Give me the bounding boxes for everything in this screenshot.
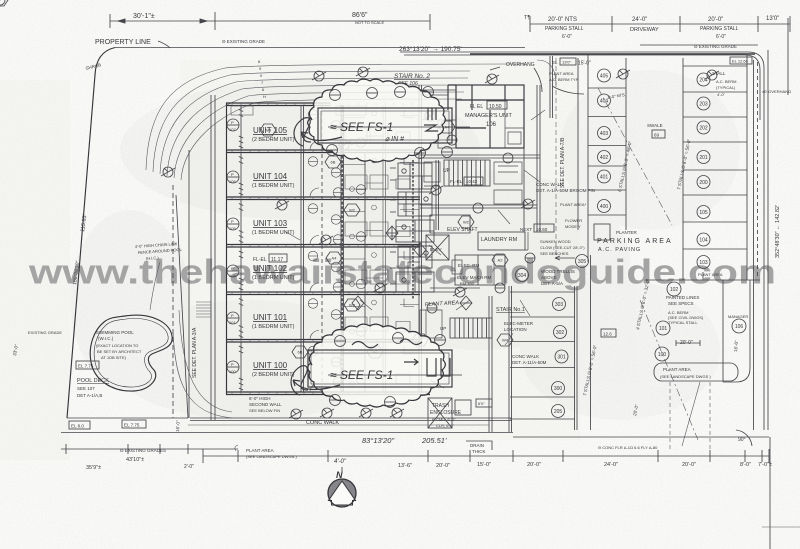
svg-text:201: 201 (699, 155, 708, 161)
svg-text:6B: 6B (331, 160, 336, 165)
svg-text:SUNKEN WOOD: SUNKEN WOOD (540, 239, 571, 244)
svg-text:6' CMU, 6'-0": 6' CMU, 6'-0" (432, 417, 456, 422)
svg-text:202: 202 (699, 126, 708, 132)
svg-text:86'6": 86'6" (352, 12, 368, 19)
svg-text:STAIR No. 2: STAIR No. 2 (394, 73, 430, 80)
svg-text:(EXACT LOCATION TO: (EXACT LOCATION TO (96, 343, 138, 348)
svg-text:43'10"±: 43'10"± (126, 457, 144, 463)
svg-text:FL EL: FL EL (470, 104, 483, 110)
svg-text:(W.I.C.): (W.I.C.) (98, 336, 114, 341)
svg-text:A2: A2 (498, 258, 504, 263)
svg-text:104: 104 (699, 238, 708, 244)
svg-text:12.6: 12.6 (603, 332, 612, 337)
svg-text:400: 400 (600, 204, 609, 210)
svg-text:A.C. BERM TYP: A.C. BERM TYP (549, 77, 579, 82)
svg-text:20'-0" NTS: 20'-0" NTS (548, 17, 577, 23)
svg-text:SEE BELOW FIN: SEE BELOW FIN (249, 408, 280, 413)
svg-text:NOT TO SCALE: NOT TO SCALE (355, 20, 384, 25)
svg-text:(1 BEDRM UNIT): (1 BEDRM UNIT) (252, 275, 295, 281)
svg-text:PLANT AREA: PLANT AREA (549, 71, 574, 76)
svg-text:15'-0": 15'-0" (477, 462, 491, 468)
svg-text:W2: W2 (349, 208, 356, 213)
svg-text:106: 106 (229, 179, 236, 184)
svg-text:SEE BENCHES: SEE BENCHES (540, 251, 569, 256)
svg-text:RM 102: RM 102 (460, 281, 475, 286)
svg-text:(2 BEDRM UNIT): (2 BEDRM UNIT) (252, 372, 295, 378)
svg-text:203: 203 (699, 102, 708, 108)
svg-text:24'-0": 24'-0" (632, 17, 647, 23)
svg-text:106: 106 (486, 122, 497, 128)
svg-text:Θ CONC FLR Δ-1Ω 6.6 FLY Δ-80: Θ CONC FLR Δ-1Ω 6.6 FLY Δ-80 (598, 445, 658, 450)
svg-text:FL-EL: FL-EL (253, 257, 267, 263)
svg-text:300: 300 (554, 386, 563, 392)
svg-text:(SEE LANDSCAPE DWGS.): (SEE LANDSCAPE DWGS.) (246, 454, 297, 459)
svg-text:69: 69 (654, 133, 660, 138)
svg-text:UNIT 103: UNIT 103 (253, 219, 288, 228)
svg-text:4'-0": 4'-0" (334, 459, 347, 465)
svg-text:W2: W2 (349, 303, 356, 308)
svg-text:P: P (231, 219, 234, 224)
svg-text:401: 401 (600, 175, 609, 181)
svg-text:PAINTED LINES: PAINTED LINES (666, 295, 699, 300)
svg-text:EL 12.60: EL 12.60 (732, 59, 749, 64)
svg-text:2'-0": 2'-0" (184, 464, 194, 470)
svg-text:13'0": 13'0" (766, 16, 779, 22)
svg-text:BE SET BY ARCHITECT: BE SET BY ARCHITECT (97, 349, 142, 354)
svg-text:10.50: 10.50 (536, 227, 548, 232)
svg-text:11.17: 11.17 (271, 257, 283, 263)
svg-text:(1 BEDRM UNIT): (1 BEDRM UNIT) (252, 324, 295, 330)
svg-text:(SEE LANDSCAPE DWGS ): (SEE LANDSCAPE DWGS ) (660, 374, 711, 379)
svg-text:LOCATION: LOCATION (504, 327, 527, 332)
svg-text:TYPICAL STALL: TYPICAL STALL (668, 320, 698, 325)
svg-text:PROPERTY LINE: PROPERTY LINE (95, 39, 151, 46)
svg-text:403: 403 (600, 131, 609, 137)
svg-text:100: 100 (658, 352, 667, 358)
svg-text:PLANT AREA: PLANT AREA (246, 448, 274, 453)
svg-text:±0' OVERHANG: ±0' OVERHANG (762, 89, 791, 94)
svg-text:SEE 107: SEE 107 (77, 386, 95, 391)
svg-text:301: 301 (557, 355, 566, 361)
svg-text:35'9"±: 35'9"± (86, 465, 101, 471)
svg-text:UNIT 100: UNIT 100 (253, 361, 288, 370)
svg-text:UP: UP (440, 326, 446, 331)
svg-text:6'-0": 6'-0" (562, 34, 572, 40)
svg-text:302: 302 (556, 330, 565, 336)
svg-text:102: 102 (670, 287, 679, 293)
svg-text:H: H (263, 94, 266, 99)
svg-text:EL: EL (552, 60, 558, 65)
svg-text:(1 BEDRM UNIT): (1 BEDRM UNIT) (252, 183, 295, 189)
svg-text:CLR, 6'-0": CLR, 6'-0" (436, 423, 455, 428)
svg-text:16'-0": 16'-0" (175, 420, 181, 432)
svg-text:8'-0": 8'-0" (740, 462, 751, 468)
svg-text:UNIT 104: UNIT 104 (253, 172, 288, 181)
svg-text:P: P (231, 313, 234, 318)
svg-text:POOL DECK: POOL DECK (77, 378, 109, 384)
svg-text:W2: W2 (463, 220, 470, 225)
svg-text:P: P (231, 120, 234, 125)
svg-text:107: 107 (229, 127, 236, 132)
svg-text:20'-0": 20'-0" (436, 463, 450, 469)
svg-text:DET. A-1/A-50M BROOM FIN: DET. A-1/A-50M BROOM FIN (536, 188, 595, 193)
svg-text:CONC WALK: CONC WALK (512, 354, 539, 359)
svg-text:SWIMMING POOL: SWIMMING POOL (96, 330, 134, 335)
svg-text:10.42: 10.42 (466, 179, 478, 184)
svg-text:FL-EL: FL-EL (450, 179, 463, 184)
svg-text:⌀ IN #: ⌀ IN # (385, 136, 404, 143)
svg-text:PARKING STALL: PARKING STALL (545, 26, 584, 32)
svg-text:ELEC-METER: ELEC-METER (504, 321, 534, 326)
svg-text:AT JOB SITE): AT JOB SITE) (101, 355, 127, 360)
svg-text:PLANT AREA: PLANT AREA (663, 367, 691, 372)
svg-text:UNIT 101: UNIT 101 (253, 313, 288, 322)
svg-text:305: 305 (578, 259, 587, 265)
svg-text:www.thehawaiistatecondoguide.c: www.thehawaiistatecondoguide.com (28, 254, 776, 292)
svg-text:ELEV MACH RM: ELEV MACH RM (457, 275, 492, 280)
svg-text:DET. A-11/A-50M: DET. A-11/A-50M (512, 360, 547, 365)
svg-text:SECOND WALL: SECOND WALL (249, 402, 282, 407)
svg-text:EXISTING GRADE: EXISTING GRADE (28, 330, 62, 335)
svg-text:DET. A-5/A: DET. A-5/A (541, 281, 563, 286)
svg-text:OVERHANG: OVERHANG (506, 62, 535, 68)
svg-text:Θ EXISTING GRADE: Θ EXISTING GRADE (694, 44, 737, 49)
svg-text:352°48'30" ← 142.82': 352°48'30" ← 142.82' (775, 205, 781, 258)
svg-text:105: 105 (229, 226, 236, 231)
svg-text:101: 101 (659, 326, 668, 332)
svg-text:20'-0": 20'-0" (527, 462, 541, 468)
svg-text:30'-1"±: 30'-1"± (133, 13, 155, 20)
svg-text:PARKING AREA: PARKING AREA (597, 238, 673, 245)
svg-text:UNIT 102: UNIT 102 (253, 264, 288, 273)
svg-text:6'-0" HIGH: 6'-0" HIGH (249, 396, 270, 401)
svg-text:FLOWER: FLOWER (565, 218, 582, 223)
svg-text:6'0": 6'0" (478, 401, 485, 406)
svg-text:MANAGER'S UNIT: MANAGER'S UNIT (465, 113, 513, 119)
svg-text:DRIVEWAY: DRIVEWAY (630, 27, 659, 33)
svg-text:13'0": 13'0" (562, 60, 571, 65)
svg-text:STAIR No.1: STAIR No.1 (496, 307, 525, 313)
svg-text:W4: W4 (265, 128, 272, 133)
svg-text:304: 304 (518, 273, 527, 279)
svg-text:SEE DET. PLAN A-7/B: SEE DET. PLAN A-7/B (560, 137, 566, 188)
svg-text:MODE Y: MODE Y (565, 224, 581, 229)
svg-text:101: 101 (229, 320, 236, 325)
svg-text:SEE DET. PLAN A-3/A: SEE DET. PLAN A-3/A (192, 327, 198, 378)
svg-text:Θ EXISTING GRADES: Θ EXISTING GRADES (120, 448, 166, 453)
svg-text:SWALE: SWALE (647, 123, 663, 128)
svg-text:EL 8.0: EL 8.0 (71, 424, 84, 429)
svg-text:205.51': 205.51' (421, 436, 447, 445)
svg-text:83°13'20": 83°13'20" (362, 436, 394, 445)
svg-text:TRASH: TRASH (432, 403, 449, 409)
svg-text:ELEC. RM: ELEC. RM (458, 263, 480, 268)
svg-text:CONC WALK: CONC WALK (536, 182, 563, 187)
svg-text:W4: W4 (502, 338, 509, 343)
svg-text:105: 105 (699, 210, 708, 216)
svg-text:ABOVE: ABOVE (541, 275, 557, 280)
svg-text:104: 104 (229, 273, 236, 278)
svg-text:405: 405 (600, 74, 609, 80)
svg-text:20'-0": 20'-0" (708, 17, 723, 23)
svg-text:20'-0": 20'-0" (682, 462, 696, 468)
svg-text:90°: 90° (738, 437, 746, 443)
svg-text:PLANT AREA*: PLANT AREA* (560, 202, 587, 207)
svg-text:P: P (231, 362, 234, 367)
svg-text:UP: UP (443, 168, 451, 174)
svg-text:(H.I.C.): (H.I.C.) (146, 255, 160, 261)
svg-text:Θ EXISTING GRADE: Θ EXISTING GRADE (222, 39, 265, 44)
svg-text:DET A-1/A,B: DET A-1/A,B (77, 393, 102, 398)
svg-text:CLGW (SEE-CUT 28'-0"): CLGW (SEE-CUT 28'-0") (540, 245, 585, 250)
svg-text:200: 200 (699, 180, 708, 186)
svg-text:PLANTER: PLANTER (616, 230, 638, 235)
svg-text:402: 402 (600, 155, 609, 161)
svg-text:303: 303 (555, 302, 564, 308)
svg-text:6B: 6B (298, 350, 303, 355)
svg-text:24'-0": 24'-0" (604, 462, 618, 468)
svg-text:WOOD TRELLIS: WOOD TRELLIS (541, 269, 575, 274)
svg-text:103: 103 (699, 260, 708, 266)
svg-text:16'-0": 16'-0" (733, 340, 739, 352)
svg-text:PLANT AREA: PLANT AREA (698, 272, 723, 277)
svg-text:T¶: T¶ (524, 15, 530, 21)
svg-text:13'-6": 13'-6" (398, 463, 412, 469)
svg-text:SEE SPECS: SEE SPECS (668, 301, 694, 306)
svg-text:P: P (231, 172, 234, 177)
svg-text:P: P (231, 266, 234, 271)
svg-text:A.C. PAVING: A.C. PAVING (598, 247, 641, 253)
svg-text:4'-0": 4'-0" (717, 92, 726, 97)
svg-text:6'-0": 6'-0" (716, 34, 726, 40)
svg-text:A4: A4 (332, 256, 338, 261)
svg-text:15'-0": 15'-0" (578, 61, 591, 67)
svg-text:(TYPICAL): (TYPICAL) (716, 85, 736, 90)
svg-text:EL 7.75: EL 7.75 (124, 423, 140, 428)
svg-text:10.50: 10.50 (489, 104, 502, 110)
svg-text:DRAIN: DRAIN (470, 443, 484, 448)
svg-text:205: 205 (554, 409, 563, 415)
svg-text:MANAGER: MANAGER (728, 314, 748, 319)
svg-text:ENCLOSURE: ENCLOSURE (430, 410, 462, 416)
svg-text:EL 7.75: EL 7.75 (78, 364, 94, 369)
svg-text:PARKING STALL: PARKING STALL (700, 26, 739, 32)
svg-text:THICK: THICK (472, 449, 486, 454)
svg-text:(2 BEDRM UNIT): (2 BEDRM UNIT) (252, 137, 295, 143)
svg-text:100: 100 (229, 369, 236, 374)
svg-text:NEXT: NEXT (520, 227, 532, 232)
svg-text:106: 106 (735, 324, 744, 330)
svg-text:A.C. BERM: A.C. BERM (716, 79, 736, 84)
svg-text:LAUNDRY RM: LAUNDRY RM (481, 237, 518, 243)
